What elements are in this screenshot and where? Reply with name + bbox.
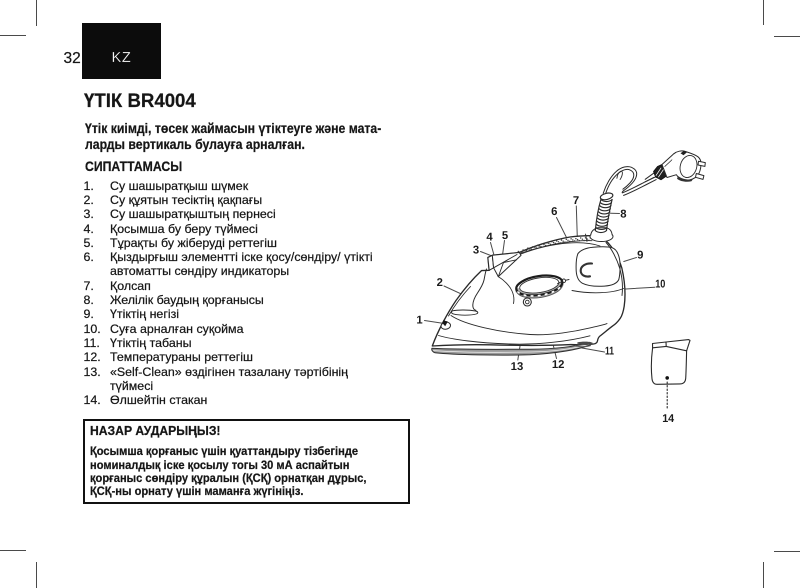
- svg-text:12: 12: [552, 359, 565, 371]
- svg-text:13: 13: [511, 361, 524, 373]
- svg-text:10: 10: [655, 278, 665, 290]
- svg-text:9: 9: [637, 250, 643, 262]
- svg-text:14: 14: [662, 413, 675, 425]
- svg-text:5: 5: [502, 230, 508, 242]
- svg-text:2: 2: [437, 277, 443, 289]
- svg-text:8: 8: [620, 209, 626, 221]
- svg-text:11: 11: [605, 346, 614, 358]
- svg-text:1: 1: [416, 314, 422, 326]
- svg-text:4: 4: [486, 232, 493, 244]
- svg-text:7: 7: [573, 195, 579, 207]
- svg-text:3: 3: [473, 245, 479, 257]
- svg-text:6: 6: [551, 206, 557, 218]
